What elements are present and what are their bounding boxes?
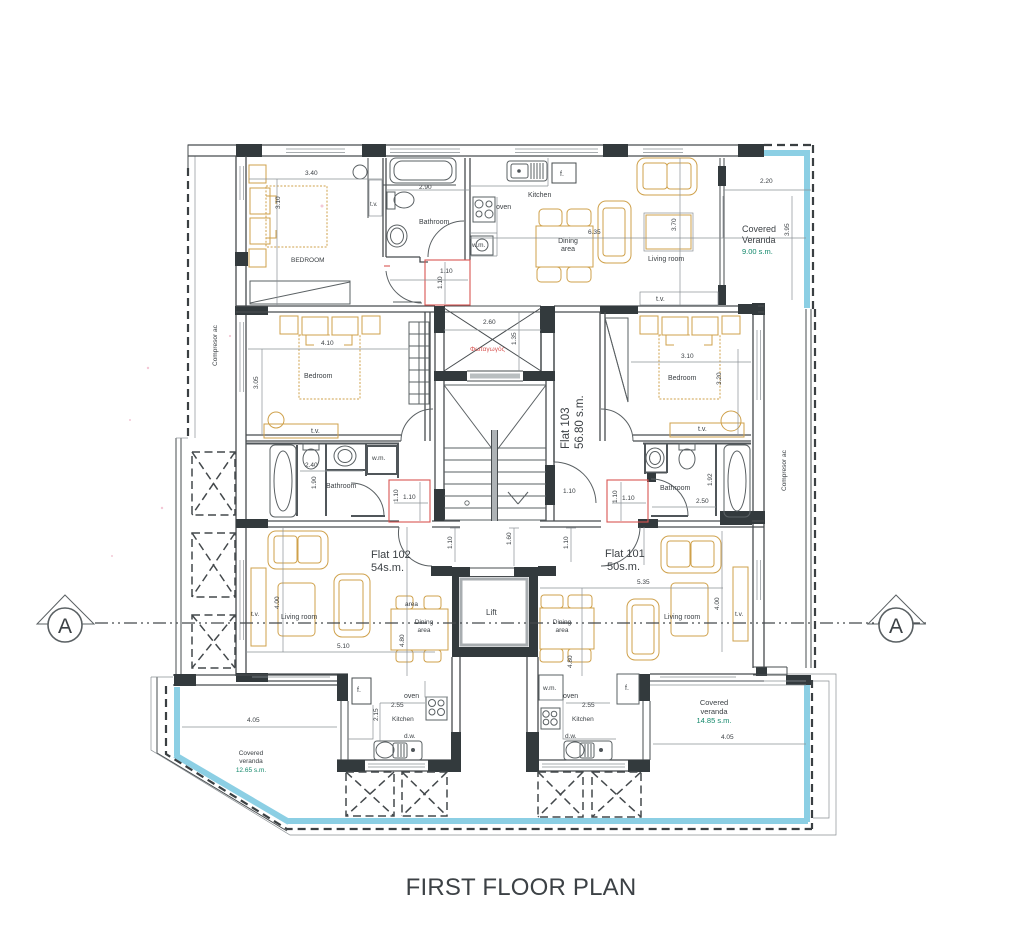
svg-text:A: A — [58, 615, 72, 638]
svg-text:9.00 s.m.: 9.00 s.m. — [742, 247, 773, 256]
svg-text:Compresor ac: Compresor ac — [781, 449, 788, 491]
svg-text:Dining: Dining — [558, 238, 578, 245]
svg-text:oven: oven — [563, 693, 578, 700]
svg-text:Lift: Lift — [486, 608, 497, 617]
svg-text:1.60: 1.60 — [506, 532, 513, 545]
svg-text:3.05: 3.05 — [253, 376, 260, 389]
svg-text:Flat 103: Flat 103 — [560, 407, 572, 449]
svg-text:Kitchen: Kitchen — [572, 716, 594, 723]
svg-text:4.05: 4.05 — [247, 717, 260, 724]
svg-text:14.85 s.m.: 14.85 s.m. — [696, 716, 731, 725]
svg-text:3.95: 3.95 — [784, 223, 791, 236]
svg-text:3.70: 3.70 — [671, 218, 678, 231]
svg-text:veranda: veranda — [239, 758, 263, 765]
svg-text:4.00: 4.00 — [274, 596, 281, 609]
svg-text:Bathroom: Bathroom — [660, 485, 691, 492]
svg-text:Covered: Covered — [742, 224, 776, 234]
svg-text:area: area — [405, 601, 418, 608]
svg-text:t.v.: t.v. — [251, 611, 259, 618]
svg-text:1.10: 1.10 — [622, 495, 635, 502]
svg-text:Flat 101: Flat 101 — [605, 548, 645, 560]
svg-text:3.40: 3.40 — [305, 170, 318, 177]
svg-text:Kitchen: Kitchen — [392, 716, 414, 723]
svg-text:2.55: 2.55 — [391, 702, 404, 709]
svg-text:area: area — [555, 627, 568, 634]
svg-text:Veranda: Veranda — [742, 235, 776, 245]
svg-text:d.w.: d.w. — [565, 733, 577, 740]
svg-text:t.v.: t.v. — [311, 428, 320, 435]
svg-text:1.10: 1.10 — [563, 488, 576, 495]
svg-text:BEDROOM: BEDROOM — [291, 257, 325, 264]
svg-text:54s.m.: 54s.m. — [371, 562, 404, 574]
svg-text:Compresor ac: Compresor ac — [212, 324, 219, 366]
svg-text:Covered: Covered — [239, 750, 264, 757]
svg-text:1.90: 1.90 — [311, 476, 318, 489]
svg-text:4.05: 4.05 — [721, 734, 734, 741]
svg-text:1.10: 1.10 — [393, 489, 400, 502]
svg-text:w.m.: w.m. — [471, 242, 486, 249]
svg-text:12.65 s.m.: 12.65 s.m. — [236, 767, 267, 774]
svg-text:w.m.: w.m. — [542, 685, 557, 692]
svg-text:1.10: 1.10 — [403, 494, 416, 501]
svg-text:2.40: 2.40 — [305, 462, 318, 469]
svg-text:t.v.: t.v. — [656, 296, 665, 303]
svg-text:t.v.: t.v. — [735, 611, 743, 618]
svg-text:A: A — [889, 615, 903, 638]
svg-text:w.m.: w.m. — [371, 455, 386, 462]
svg-text:1.92: 1.92 — [707, 473, 714, 486]
svg-text:area: area — [417, 627, 430, 634]
svg-text:Living room: Living room — [648, 256, 684, 263]
svg-text:Bedroom: Bedroom — [668, 375, 697, 382]
svg-text:4.10: 4.10 — [321, 340, 334, 347]
svg-text:veranda: veranda — [700, 707, 728, 716]
svg-text:Φωταγωγός: Φωταγωγός — [470, 345, 505, 353]
svg-text:1.10: 1.10 — [447, 536, 454, 549]
svg-text:Bedroom: Bedroom — [304, 373, 333, 380]
svg-text:oven: oven — [496, 204, 511, 211]
svg-text:t.v.: t.v. — [370, 202, 378, 208]
svg-text:1.10: 1.10 — [612, 490, 619, 503]
svg-text:4.80: 4.80 — [399, 634, 406, 647]
svg-text:56.80 s.m.: 56.80 s.m. — [574, 395, 586, 449]
svg-text:2.60: 2.60 — [483, 319, 496, 326]
svg-text:oven: oven — [404, 693, 419, 700]
svg-text:Living room: Living room — [664, 614, 700, 621]
svg-text:t.v.: t.v. — [698, 426, 707, 433]
svg-text:4.00: 4.00 — [714, 597, 721, 610]
svg-text:2.15: 2.15 — [373, 708, 380, 721]
svg-text:f.: f. — [560, 171, 564, 178]
svg-text:area: area — [561, 246, 575, 253]
svg-text:FIRST FLOOR PLAN: FIRST FLOOR PLAN — [406, 874, 637, 901]
svg-text:5.35: 5.35 — [637, 579, 650, 586]
svg-text:d.w.: d.w. — [404, 733, 416, 740]
svg-text:Bathroom: Bathroom — [419, 219, 450, 226]
svg-text:Living room: Living room — [281, 614, 317, 621]
svg-text:1.10: 1.10 — [437, 276, 444, 289]
svg-text:6.35: 6.35 — [588, 229, 601, 236]
svg-text:50s.m.: 50s.m. — [607, 561, 640, 573]
svg-text:f.: f. — [625, 685, 629, 692]
svg-text:Bathroom: Bathroom — [326, 483, 357, 490]
svg-text:1.10: 1.10 — [563, 536, 570, 549]
svg-text:f.: f. — [357, 687, 361, 694]
svg-text:Covered: Covered — [700, 698, 728, 707]
svg-text:Flat 102: Flat 102 — [371, 549, 411, 561]
svg-text:4.80: 4.80 — [567, 655, 574, 668]
svg-text:5.10: 5.10 — [337, 643, 350, 650]
svg-text:2.50: 2.50 — [696, 498, 709, 505]
svg-text:2.20: 2.20 — [760, 178, 773, 185]
svg-text:2.55: 2.55 — [582, 702, 595, 709]
svg-text:1.10: 1.10 — [440, 268, 453, 275]
svg-text:1.35: 1.35 — [511, 332, 518, 345]
svg-text:Kitchen: Kitchen — [528, 192, 551, 199]
svg-text:3.20: 3.20 — [716, 372, 723, 385]
svg-text:2.90: 2.90 — [419, 184, 432, 191]
svg-text:3.10: 3.10 — [681, 353, 694, 360]
svg-text:3.10: 3.10 — [275, 196, 282, 209]
